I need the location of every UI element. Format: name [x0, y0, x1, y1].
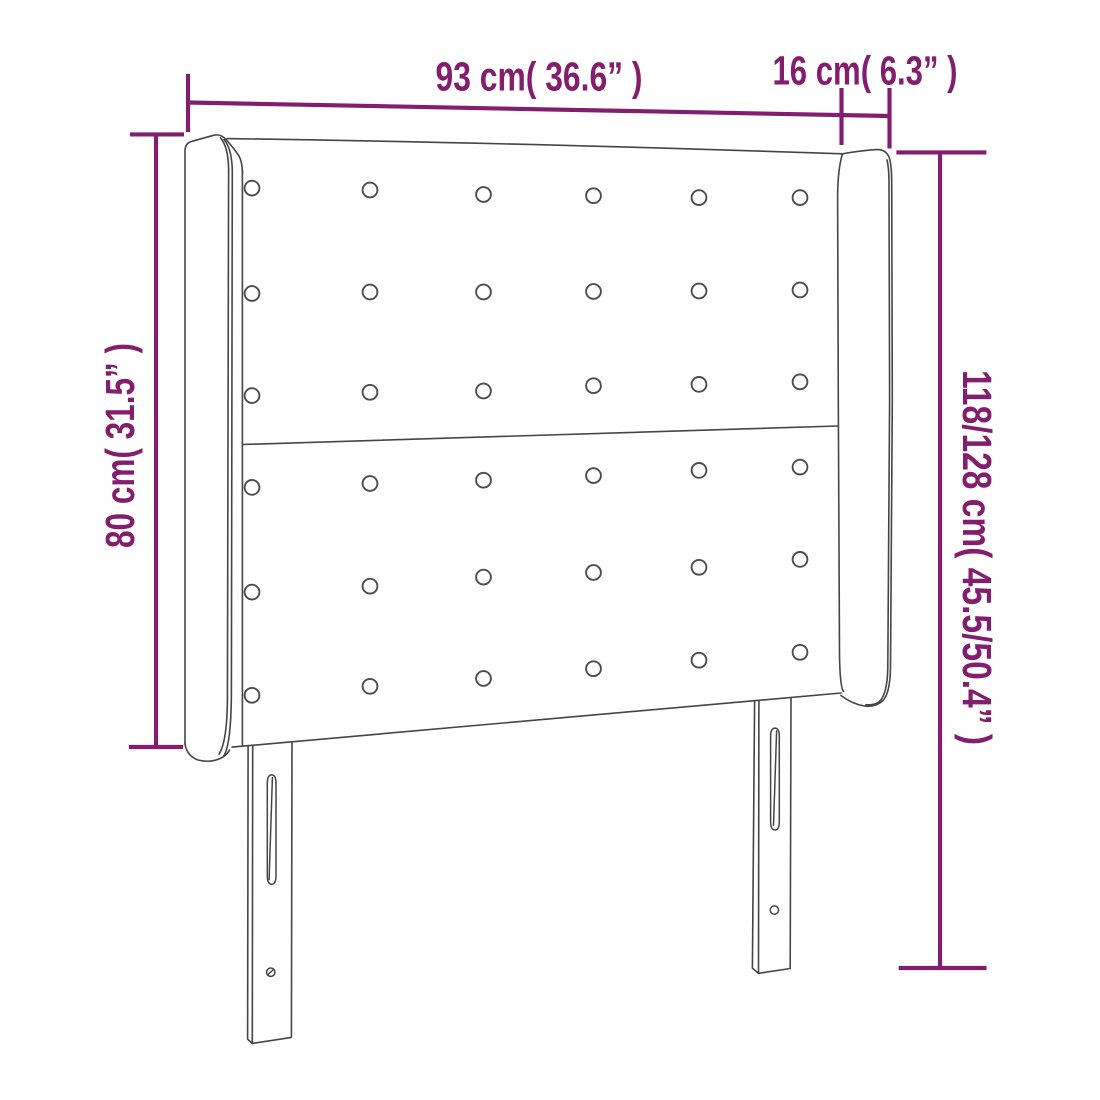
svg-text:80 cm( 31.5” ): 80 cm( 31.5” )	[97, 343, 143, 548]
svg-text:93 cm( 36.6” ): 93 cm( 36.6” )	[436, 54, 643, 100]
svg-text:16 cm( 6.3” ): 16 cm( 6.3” )	[773, 48, 958, 94]
svg-text:118/128 cm( 45.5/50.4” ): 118/128 cm( 45.5/50.4” )	[954, 370, 1000, 745]
